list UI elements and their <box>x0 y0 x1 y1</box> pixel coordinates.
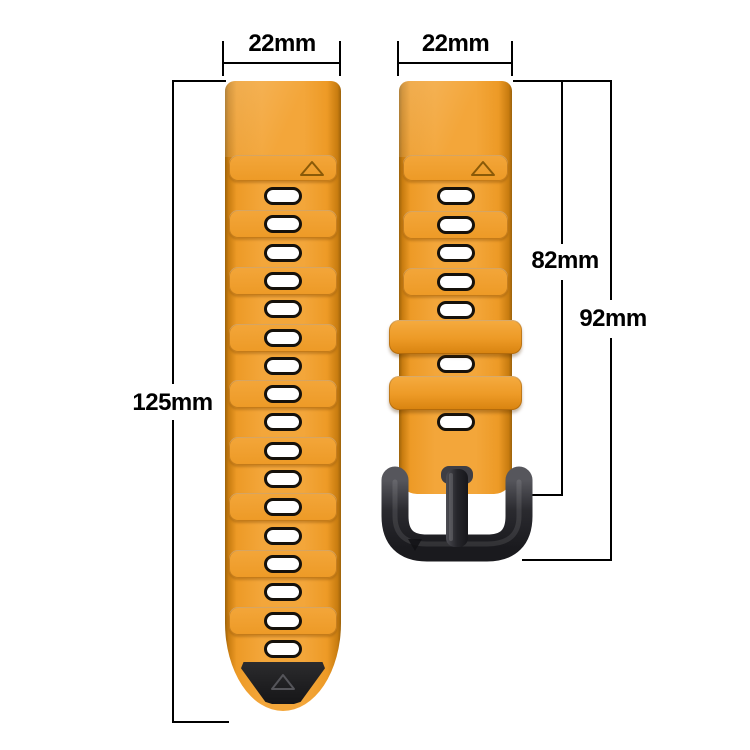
alignment-band <box>229 155 337 181</box>
strap-hole <box>264 187 302 205</box>
strap-hole <box>437 355 475 373</box>
triangle-up-icon <box>470 160 496 177</box>
dimension-tick <box>222 41 224 76</box>
strap-hole <box>437 413 475 431</box>
strap-hole <box>264 244 302 262</box>
dimension-line <box>172 80 174 384</box>
strap-hole <box>264 555 302 573</box>
strap-hole <box>264 300 302 318</box>
dimension-line <box>561 80 563 244</box>
left-width-label: 22mm <box>223 31 341 57</box>
strap-buckle-piece <box>381 81 533 565</box>
strap-long-piece <box>225 81 341 711</box>
strap-hole <box>264 527 302 545</box>
triangle-up-icon <box>269 672 297 692</box>
right-width-label: 22mm <box>398 31 513 57</box>
buckle <box>381 466 533 566</box>
strap-hole <box>264 357 302 375</box>
strap-hole <box>264 612 302 630</box>
keeper-loop-2 <box>389 376 522 410</box>
strap-hole <box>264 385 302 403</box>
right-length-92-label: 92mm <box>560 306 666 332</box>
dimension-reference-line <box>173 721 229 723</box>
left-length-label: 125mm <box>115 390 230 416</box>
dimension-tick <box>339 41 341 76</box>
dimension-line <box>223 62 341 64</box>
dimension-line <box>398 62 513 64</box>
strap-hole <box>264 413 302 431</box>
strap-hole <box>264 442 302 460</box>
strap-hole <box>264 329 302 347</box>
dimension-reference-line <box>173 80 226 82</box>
strap-hole <box>437 273 475 291</box>
strap-hole <box>437 216 475 234</box>
right-length-82-label: 82mm <box>512 248 618 274</box>
strap-hole <box>264 498 302 516</box>
strap-hole <box>264 272 302 290</box>
strap-hole <box>264 470 302 488</box>
strap-buckle-body <box>399 81 512 494</box>
strap-hole <box>264 640 302 658</box>
strap-highlight <box>225 81 341 157</box>
strap-hole <box>437 187 475 205</box>
dimension-line <box>172 420 174 723</box>
keeper-loop-1 <box>389 320 522 354</box>
strap-highlight <box>399 81 512 157</box>
triangle-up-icon <box>299 160 325 177</box>
dimension-tick <box>397 41 399 76</box>
dimension-line <box>610 338 612 561</box>
dimension-tick <box>511 41 513 76</box>
strap-hole <box>264 215 302 233</box>
dimension-tick <box>522 559 612 561</box>
strap-hole <box>264 583 302 601</box>
strap-end-cap <box>241 662 325 704</box>
alignment-band <box>403 155 508 181</box>
product-diagram: 22mm 22mm 125mm 82mm 92mm <box>0 0 750 750</box>
strap-hole <box>437 301 475 319</box>
dimension-line <box>610 80 612 300</box>
strap-hole <box>437 244 475 262</box>
